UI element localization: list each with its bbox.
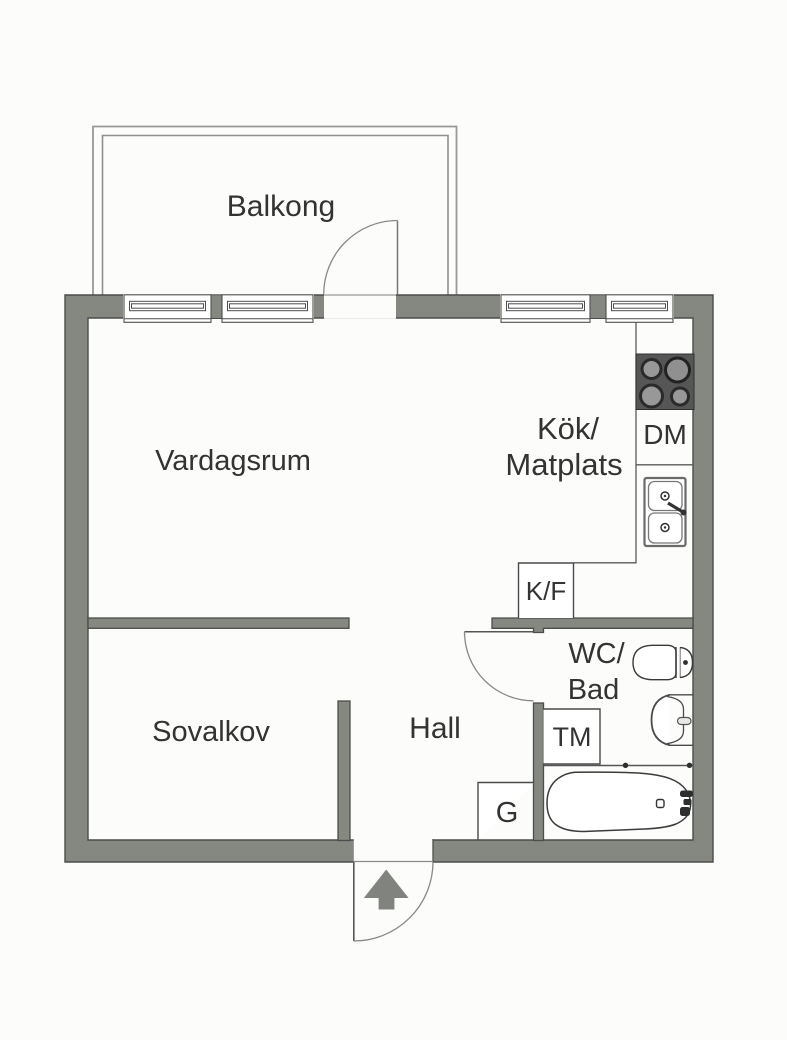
- svg-text:WC/: WC/: [568, 638, 625, 670]
- svg-text:G: G: [496, 797, 519, 829]
- svg-text:DM: DM: [643, 419, 687, 450]
- svg-text:TM: TM: [553, 722, 592, 752]
- svg-text:Vardagsrum: Vardagsrum: [155, 445, 311, 477]
- svg-text:Kök/: Kök/: [537, 411, 599, 446]
- svg-text:Balkong: Balkong: [227, 190, 335, 223]
- svg-text:Sovalkov: Sovalkov: [152, 716, 270, 748]
- svg-text:Hall: Hall: [409, 712, 461, 745]
- svg-text:K/F: K/F: [526, 576, 566, 606]
- svg-text:Matplats: Matplats: [505, 447, 622, 482]
- svg-text:Bad: Bad: [568, 674, 620, 706]
